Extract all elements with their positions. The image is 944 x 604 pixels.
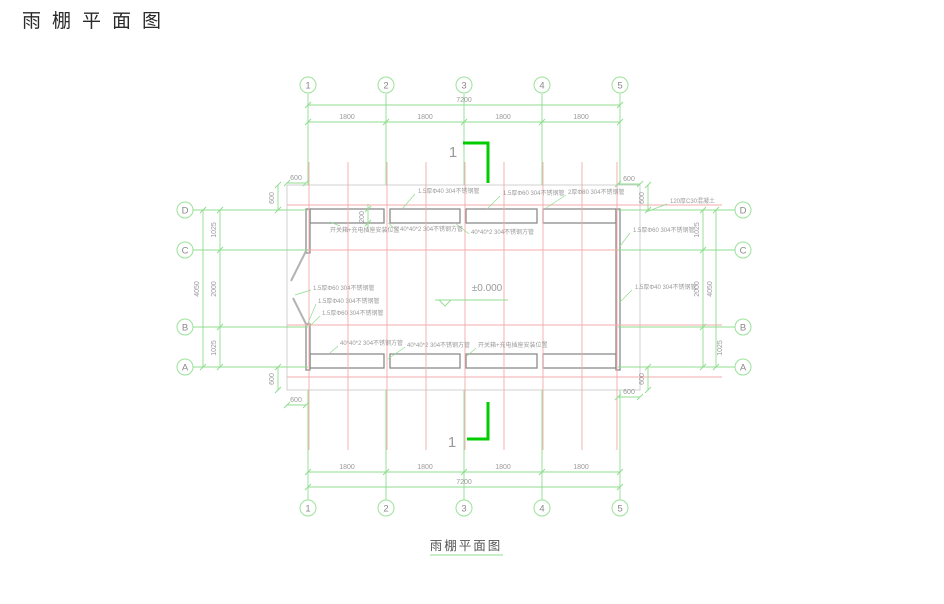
elevation-marker: ±0.000 <box>435 283 508 306</box>
top-beam-panel <box>466 209 537 223</box>
bottom-beam-panel <box>390 354 460 368</box>
top-beam-panel <box>390 209 460 223</box>
top-beam-panel <box>543 209 616 223</box>
axis-label-rowD: D <box>740 206 747 217</box>
elevation-symbol <box>435 300 508 306</box>
dim-bay: 1800 <box>339 114 355 121</box>
door-opening-leaves <box>291 249 307 326</box>
dim-2000: 2000 <box>211 281 218 297</box>
page-title: 雨棚平面图 <box>22 6 172 33</box>
axis-label-rowC: C <box>182 246 189 257</box>
label-pipe60: 1.5厚Φ60 304不锈钢管 <box>503 189 564 197</box>
dim-bay: 1800 <box>573 114 589 121</box>
plan-drawing: 7200 1800 1800 1800 1800 1800 1800 1800 … <box>0 0 944 604</box>
dim-1025: 1025 <box>694 222 701 238</box>
green-dimension-lines <box>193 94 735 500</box>
label-pipe40: 1.5厚Φ40 304不锈钢管 <box>635 283 696 291</box>
dim-total-depth-left: 4050 <box>194 281 201 297</box>
dim-total-depth-right: 4050 <box>707 281 714 297</box>
dim-600: 600 <box>290 397 302 404</box>
label-pipe60: 1.5厚Φ60 304不锈钢管 <box>633 226 694 234</box>
label-switch-box: 开关箱+充电插座安装位置 <box>478 341 548 349</box>
section-cut-line-top <box>463 143 488 183</box>
drawing-caption: 雨棚平面图 <box>430 538 503 555</box>
label-square-tube: 40*40*2 304不锈钢方管 <box>400 225 463 233</box>
dim-ticks <box>200 102 719 490</box>
dim-1025: 1025 <box>211 340 218 356</box>
label-pipe60: 1.5厚Φ60 304不锈钢管 <box>322 309 383 317</box>
dim-1025: 1025 <box>211 222 218 238</box>
dim-bay: 1800 <box>417 464 433 471</box>
dim-total-width-top: 7200 <box>456 97 472 104</box>
axis-label-col3: 3 <box>461 81 466 92</box>
dim-bay: 1800 <box>417 114 433 121</box>
dim-600: 600 <box>639 373 646 385</box>
dimension-texts: 7200 1800 1800 1800 1800 1800 1800 1800 … <box>194 97 724 486</box>
drawing-canvas: 雨棚平面图 <box>0 0 944 604</box>
axis-label-rowB: B <box>182 323 188 334</box>
label-concrete: 120厚C30混凝土 <box>670 197 715 205</box>
axis-label-col3: 3 <box>461 504 466 515</box>
section-number-top: 1 <box>449 144 457 161</box>
label-pipe40: 1.5厚Φ40 304不锈钢管 <box>418 187 479 195</box>
dim-bay: 1800 <box>495 464 511 471</box>
label-square-tube: 40*40*2 304不锈钢方管 <box>471 228 534 236</box>
axis-label-col1: 1 <box>305 504 310 515</box>
axis-label-rowC: C <box>740 246 747 257</box>
red-grid <box>287 162 722 450</box>
axis-label-col4: 4 <box>539 504 544 515</box>
dim-total-width-bottom: 7200 <box>456 479 472 486</box>
dim-600: 600 <box>623 176 635 183</box>
axis-label-col2: 2 <box>383 504 388 515</box>
axis-label-col2: 2 <box>383 81 388 92</box>
dim-600: 600 <box>623 389 635 396</box>
elevation-value: ±0.000 <box>472 283 503 294</box>
section-cut-line-bottom <box>467 402 488 439</box>
dim-1025: 1025 <box>717 340 724 356</box>
dim-600: 600 <box>639 192 646 204</box>
axis-label-col4: 4 <box>539 81 544 92</box>
axis-label-rowD: D <box>182 206 189 217</box>
axis-label-col1: 1 <box>305 81 310 92</box>
axis-label-col5: 5 <box>617 504 622 515</box>
label-pipe40: 1.5厚Φ40 304不锈钢管 <box>318 297 379 305</box>
label-square-tube: 40*40*2 304不锈钢方管 <box>340 339 403 347</box>
top-beam-panel <box>310 209 384 223</box>
label-pipe80: 2厚Φ80 304不锈钢管 <box>568 188 624 196</box>
label-square-tube: 40*40*2 304不锈钢方管 <box>407 341 470 349</box>
dim-bay: 1800 <box>573 464 589 471</box>
dim-600: 600 <box>290 175 302 182</box>
bottom-beam-panel <box>466 354 537 368</box>
column-axis-lines-top <box>308 94 620 185</box>
dim-strip-200: 200 <box>359 211 366 223</box>
drawing-caption-text: 雨棚平面图 <box>430 538 503 553</box>
dim-600: 600 <box>269 373 276 385</box>
section-number-bottom: 1 <box>448 434 456 451</box>
bottom-beam-panel <box>543 354 616 368</box>
label-switch-box: 开关箱+充电插座安装位置 <box>330 226 400 234</box>
bottom-beam-panel <box>310 354 384 368</box>
label-pipe60: 1.5厚Φ60 304不锈钢管 <box>313 284 374 292</box>
dim-bay: 1800 <box>495 114 511 121</box>
axis-label-col5: 5 <box>617 81 622 92</box>
dim-600: 600 <box>269 192 276 204</box>
dim-bay: 1800 <box>339 464 355 471</box>
axis-label-rowB: B <box>740 323 746 334</box>
axis-label-rowA: A <box>740 363 747 374</box>
axis-label-rowA: A <box>182 363 189 374</box>
